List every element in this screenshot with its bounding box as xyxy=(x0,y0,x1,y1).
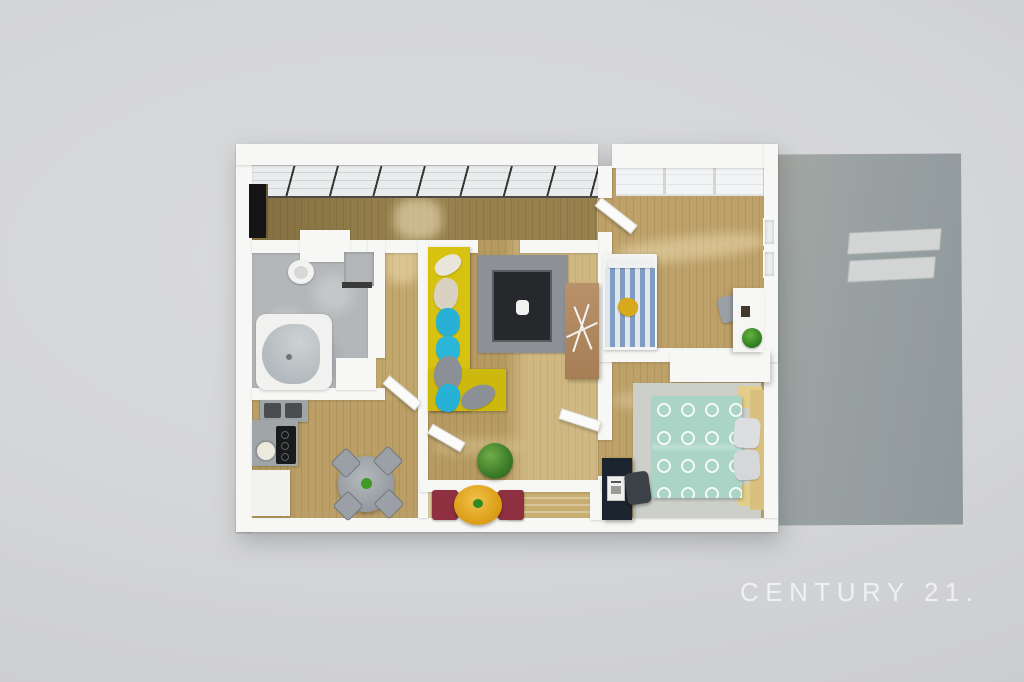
bed-pillow xyxy=(733,449,761,480)
burner xyxy=(281,442,289,450)
century21-watermark: CENTURY 21. xyxy=(740,577,980,608)
outer-wall-top-left xyxy=(236,144,598,165)
kitchen-sink xyxy=(285,403,302,418)
floor-plan xyxy=(236,140,778,532)
laptop-screen-line xyxy=(611,481,621,483)
fridge-cabinet xyxy=(252,470,290,516)
bed-pillow xyxy=(733,417,761,449)
scene: CENTURY 21. xyxy=(0,0,1024,682)
sink-counter xyxy=(260,400,308,422)
window-light-reflection xyxy=(848,229,942,255)
game-controller xyxy=(516,300,529,315)
wall-cast-shadow xyxy=(777,154,963,526)
wall-living-top xyxy=(520,240,598,253)
burner xyxy=(281,453,289,461)
bathroom-vanity xyxy=(300,230,350,262)
sideboard xyxy=(565,283,599,379)
sofa-pillow xyxy=(436,308,460,336)
burner xyxy=(281,431,289,439)
bathroom-cabinet xyxy=(336,358,376,390)
teal-duvet xyxy=(652,396,742,498)
table-plant xyxy=(473,499,483,508)
wall-niche xyxy=(763,218,776,246)
wall-center-vertical xyxy=(598,166,612,198)
outer-wall-right xyxy=(764,144,778,518)
potted-plant xyxy=(742,328,762,348)
bed-single xyxy=(603,254,657,350)
outer-wall-top-right xyxy=(612,144,778,168)
kitchen-counter xyxy=(252,420,298,466)
entry-table xyxy=(454,485,502,525)
desk-chair xyxy=(624,470,652,505)
kitchen-sink xyxy=(264,403,281,418)
washer xyxy=(344,252,374,286)
wall-nook-right xyxy=(590,492,602,520)
window-light-reflection xyxy=(848,257,936,282)
wall-corridor-right xyxy=(418,240,428,518)
bathtub-drain xyxy=(286,354,292,360)
laptop-keyboard xyxy=(611,486,621,494)
cooktop xyxy=(276,426,296,464)
sunlight-patch xyxy=(394,198,442,240)
coffee-table xyxy=(492,270,552,342)
round-sink xyxy=(255,440,277,462)
wall-niche xyxy=(763,250,776,278)
faucet-bar xyxy=(342,282,372,288)
toilet-seat xyxy=(294,266,308,279)
outer-wall-bottom xyxy=(236,518,778,532)
wardrobe-closet xyxy=(670,350,770,382)
bed-pillow xyxy=(607,257,653,268)
corner-bathtub xyxy=(256,314,332,390)
bedroom1-window-row xyxy=(616,165,764,196)
laptop xyxy=(607,476,625,501)
balcony-window-row xyxy=(252,165,598,198)
desk-item xyxy=(741,306,750,317)
tv-panel xyxy=(249,184,268,238)
entry-mat-floor xyxy=(524,492,590,520)
potted-plant xyxy=(477,443,513,479)
table-centerpiece xyxy=(361,478,372,489)
